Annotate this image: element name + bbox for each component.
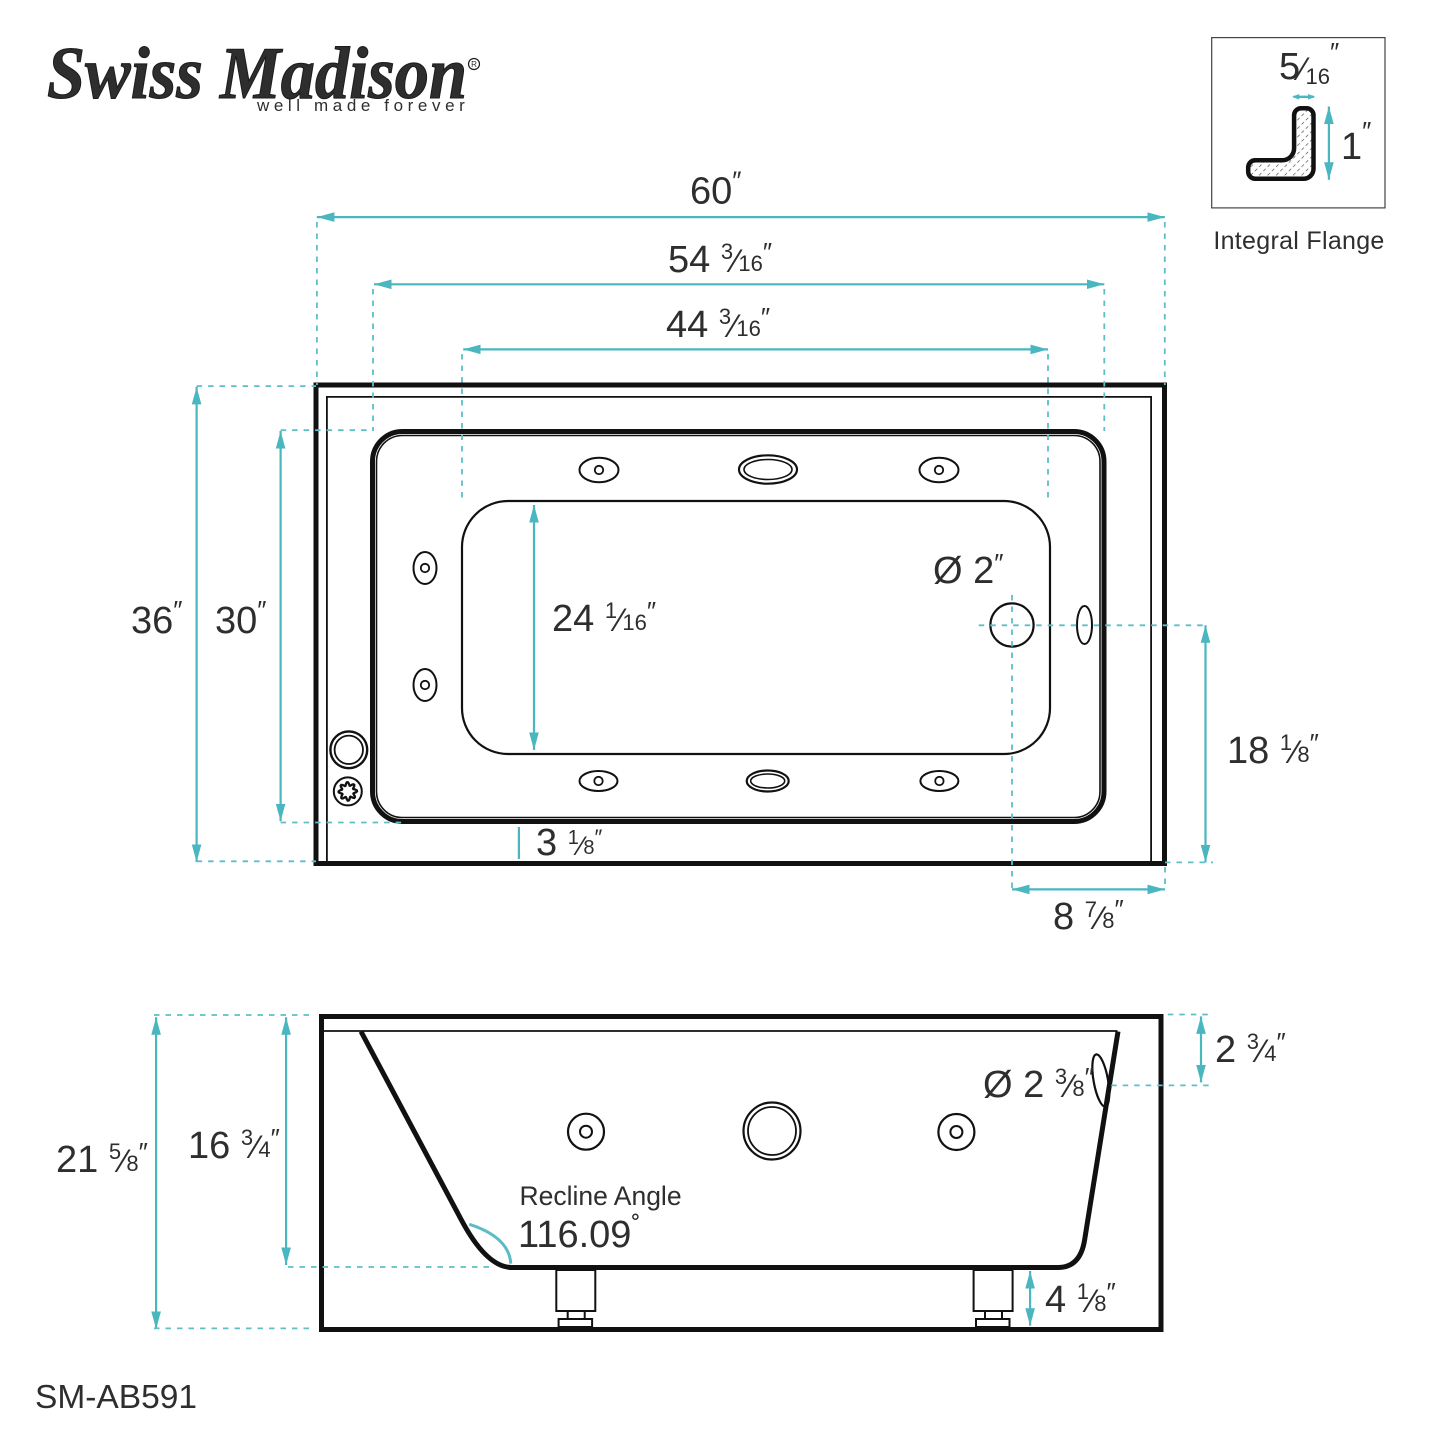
svg-text:Recline Angle: Recline Angle bbox=[520, 1181, 682, 1211]
svg-text:R: R bbox=[471, 60, 477, 69]
svg-text:Integral Flange: Integral Flange bbox=[1213, 227, 1384, 255]
svg-text:116.09˚: 116.09˚ bbox=[518, 1211, 641, 1256]
svg-text:Ø 2″: Ø 2″ bbox=[933, 548, 1003, 592]
svg-text:SM-AB591: SM-AB591 bbox=[35, 1379, 197, 1416]
svg-text:well made forever: well made forever bbox=[256, 96, 469, 115]
